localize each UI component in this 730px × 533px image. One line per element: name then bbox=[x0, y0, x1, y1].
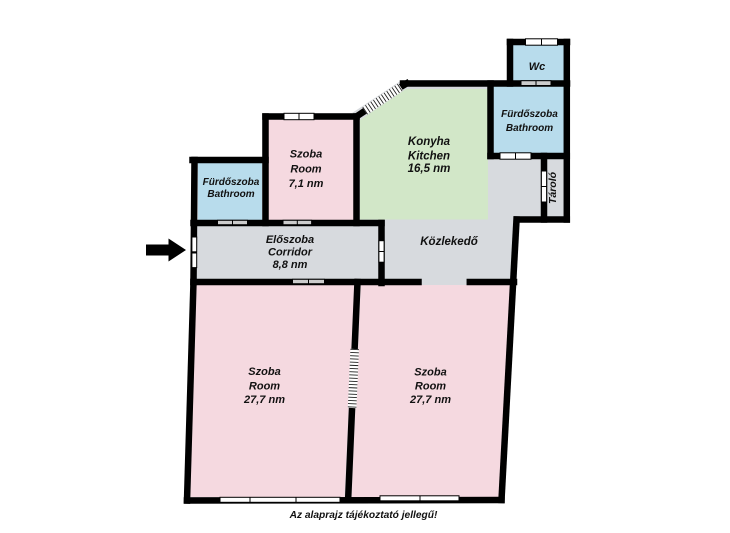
svg-text:Corridor: Corridor bbox=[268, 247, 313, 259]
svg-text:Room: Room bbox=[415, 381, 446, 393]
svg-text:Szoba: Szoba bbox=[248, 366, 280, 378]
svg-text:Bathroom: Bathroom bbox=[207, 189, 254, 200]
svg-text:Room: Room bbox=[290, 164, 321, 176]
svg-text:Szoba: Szoba bbox=[414, 367, 446, 379]
svg-text:Kitchen: Kitchen bbox=[408, 151, 450, 163]
svg-text:Bathroom: Bathroom bbox=[506, 123, 553, 134]
svg-text:Közlekedő: Közlekedő bbox=[420, 236, 478, 248]
svg-text:7,1 nm: 7,1 nm bbox=[289, 178, 324, 190]
svg-text:8,8 nm: 8,8 nm bbox=[273, 259, 308, 271]
svg-text:Fürdőszoba: Fürdőszoba bbox=[501, 109, 558, 120]
svg-text:Konyha: Konyha bbox=[408, 136, 451, 148]
svg-text:Az alaprajz tájékoztató jelleg: Az alaprajz tájékoztató jellegű! bbox=[289, 510, 438, 521]
svg-text:Szoba: Szoba bbox=[290, 149, 322, 161]
svg-text:Tároló: Tároló bbox=[547, 171, 559, 204]
svg-text:Room: Room bbox=[249, 381, 280, 393]
svg-text:27,7 nm: 27,7 nm bbox=[243, 394, 285, 406]
svg-text:27,7 nm: 27,7 nm bbox=[409, 394, 451, 406]
svg-text:16,5 nm: 16,5 nm bbox=[408, 163, 451, 175]
svg-text:Előszoba: Előszoba bbox=[266, 234, 314, 246]
svg-text:Wc: Wc bbox=[529, 61, 546, 73]
svg-text:Fürdőszoba: Fürdőszoba bbox=[203, 177, 260, 188]
